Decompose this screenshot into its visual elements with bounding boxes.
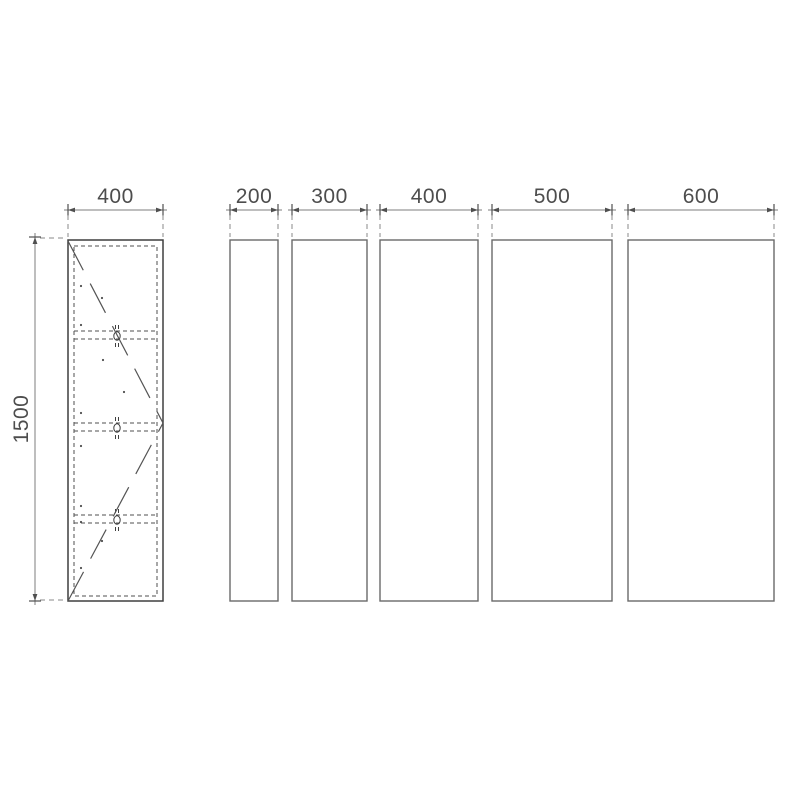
dimension-cabinet-width: [64, 204, 167, 237]
cabinet-front-view: [68, 240, 163, 601]
panel-200-dimension-label: 200: [230, 186, 278, 208]
door-swing-line: [68, 423, 163, 601]
drawing-linework: [0, 0, 800, 800]
door-swing-line: [68, 241, 163, 423]
panel-600-dimension-label: 600: [628, 186, 774, 208]
panel-500-dimension-label: 500: [492, 186, 612, 208]
cabinet-width-dimension-label: 400: [68, 186, 163, 208]
dimension-cabinet-height: [29, 233, 65, 605]
shelf-connector-symbol: [114, 417, 120, 439]
panel-outline: [628, 240, 774, 601]
panel-outline: [292, 240, 367, 601]
dimension-arrow-left: [68, 208, 75, 213]
panel-200: [226, 204, 282, 601]
technical-drawing-canvas: 400 1500 200 300 400 500 600: [0, 0, 800, 800]
cabinet-height-dimension-label: 1500: [11, 377, 33, 461]
panel-300-dimension-label: 300: [292, 186, 367, 208]
dimension-arrow-right: [156, 208, 163, 213]
panel-600: [624, 204, 778, 601]
panel-300: [288, 204, 371, 601]
dimension-arrow-top: [33, 237, 38, 244]
panel-outline: [230, 240, 278, 601]
panel-outline: [380, 240, 478, 601]
panel-400-dimension-label: 400: [380, 186, 478, 208]
panel-500: [488, 204, 616, 601]
panel-400: [376, 204, 482, 601]
panel-outline: [492, 240, 612, 601]
dimension-arrow-bottom: [33, 594, 38, 601]
